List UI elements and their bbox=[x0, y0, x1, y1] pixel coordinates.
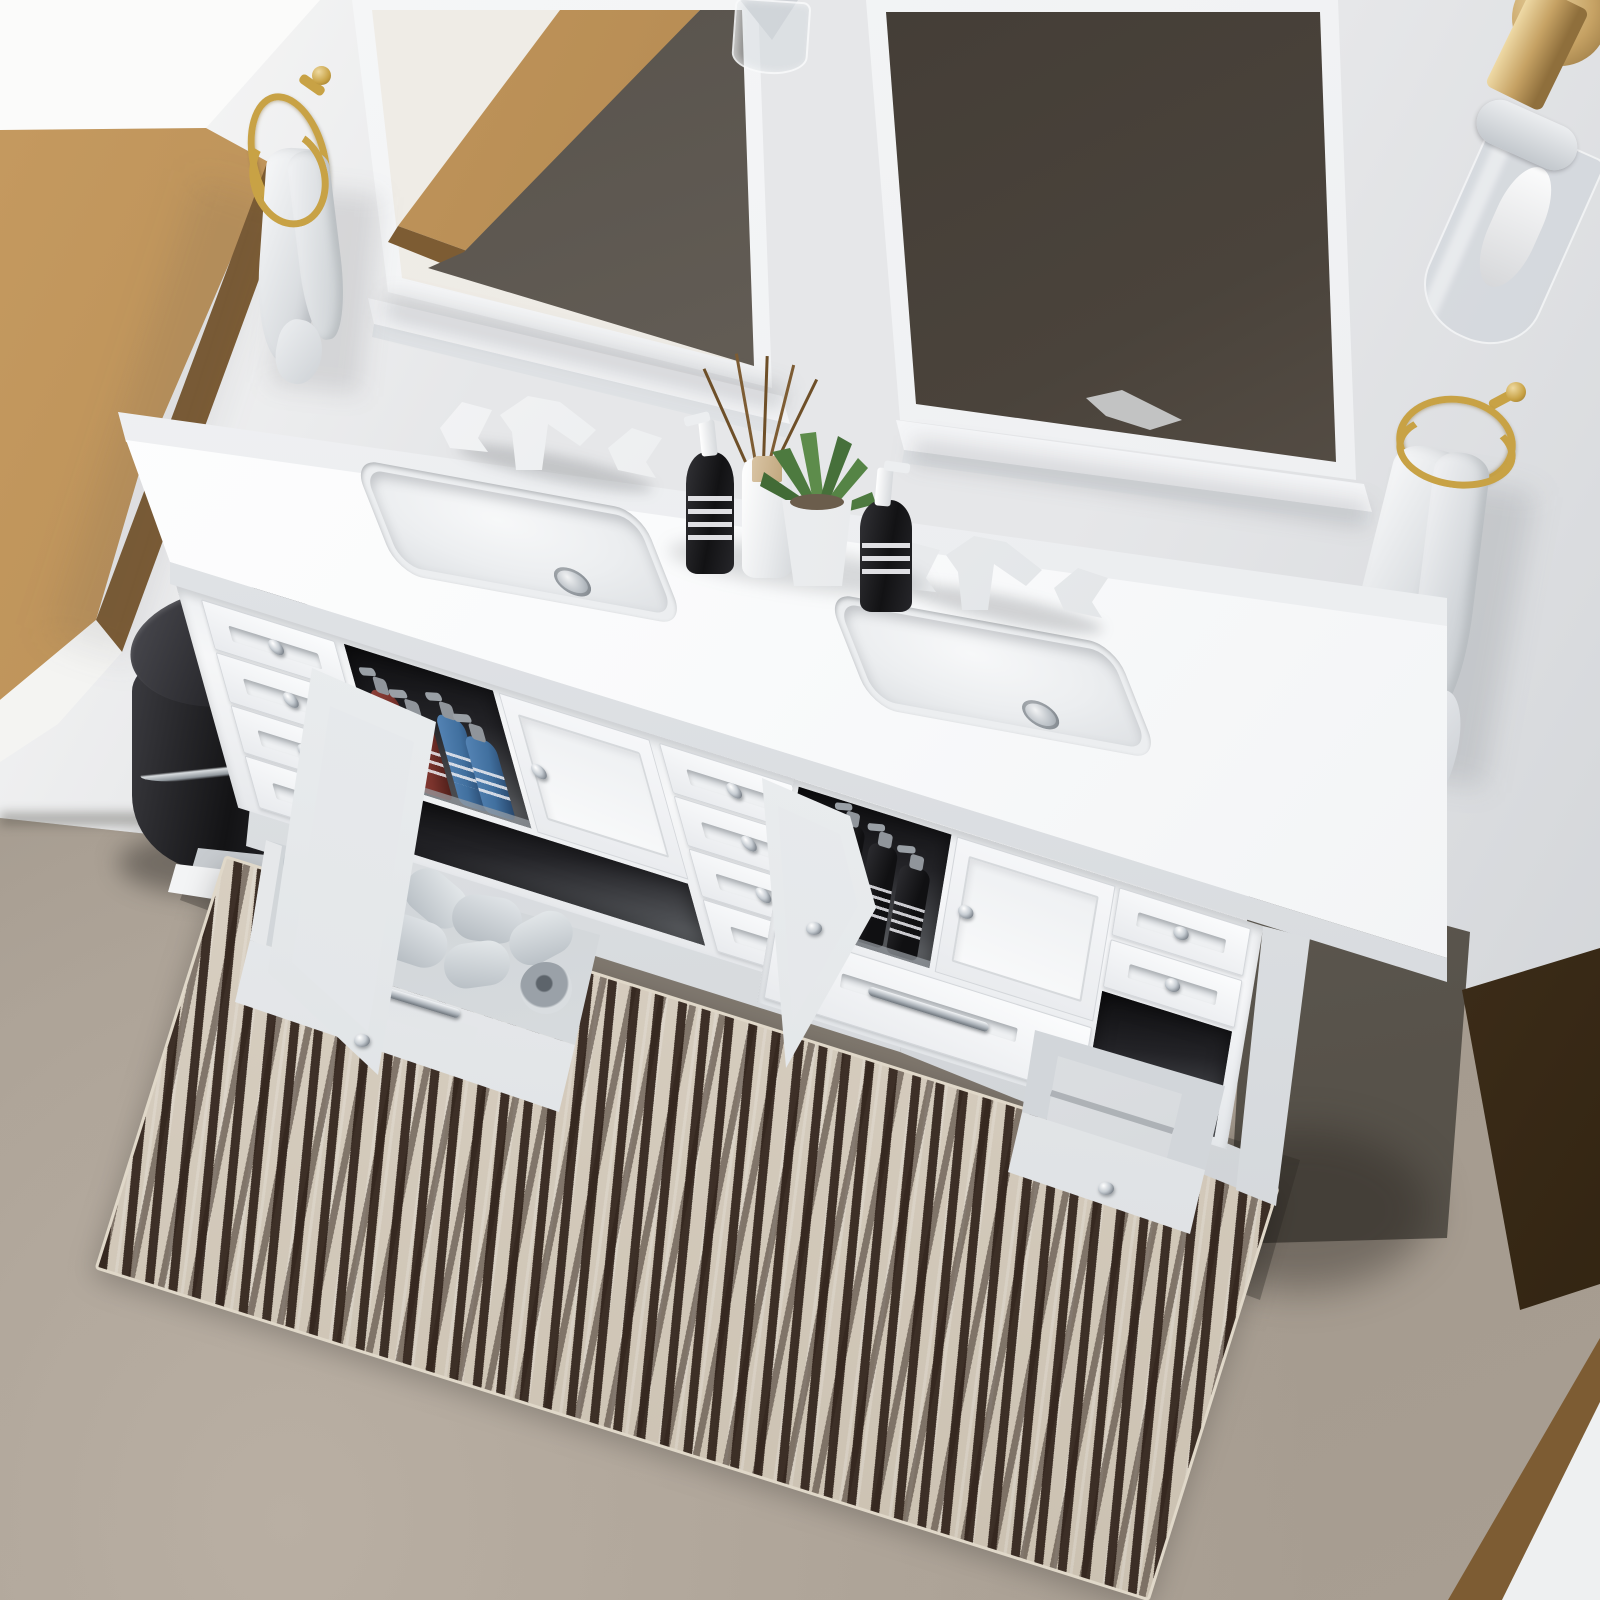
black-bottle-right bbox=[860, 500, 912, 612]
drawer-knob bbox=[739, 834, 758, 854]
bathroom-render bbox=[0, 0, 1600, 1600]
left-open-door-knob bbox=[354, 1034, 370, 1047]
bottle-label bbox=[862, 543, 910, 581]
bottle-label bbox=[688, 496, 732, 540]
drawer-knob bbox=[754, 885, 773, 905]
door-panel bbox=[951, 856, 1098, 1002]
drawer-knob bbox=[281, 690, 300, 710]
black-bottle-left bbox=[686, 452, 734, 574]
drawer-knob bbox=[266, 637, 285, 657]
towel-drawer-knob bbox=[1098, 1182, 1114, 1195]
drawer-bar-pull bbox=[868, 986, 990, 1033]
right-ring-plate bbox=[1506, 382, 1526, 402]
door-panel bbox=[518, 714, 670, 858]
plant-soil bbox=[790, 494, 844, 510]
drawer-knob bbox=[724, 781, 743, 801]
right-open-door-knob bbox=[806, 922, 822, 935]
pendant-glass-shade bbox=[731, 0, 812, 77]
left-ring-plate bbox=[312, 66, 331, 85]
black-bottle-left-pump bbox=[698, 419, 718, 456]
black-bottle-right-pump bbox=[874, 467, 893, 506]
